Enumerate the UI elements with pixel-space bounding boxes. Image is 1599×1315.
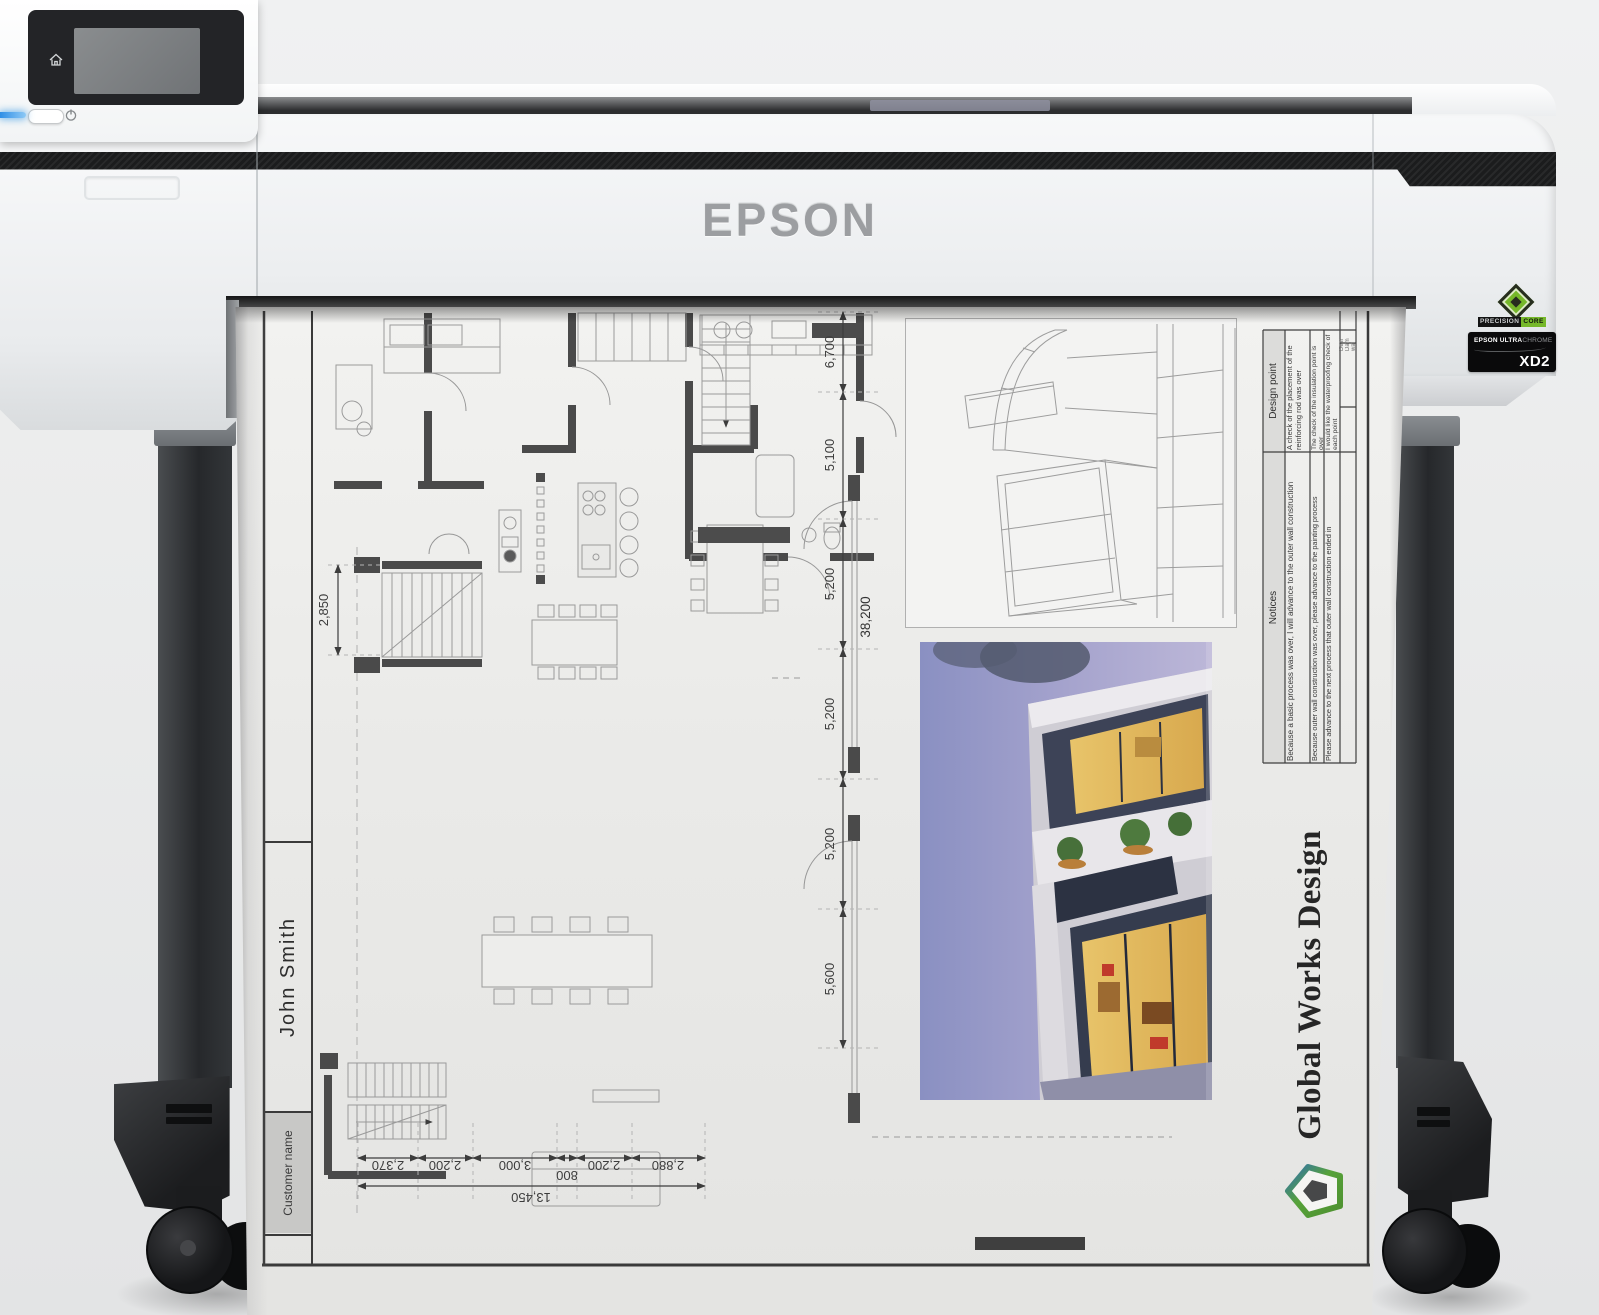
touchscreen-bezel xyxy=(28,10,244,105)
printhead-glimpse xyxy=(870,100,1050,111)
power-button xyxy=(28,109,64,124)
status-led xyxy=(0,112,26,118)
ultrachrome-suffix: CHROME xyxy=(1522,337,1552,344)
dim-total-label: 38,200 xyxy=(858,596,873,637)
ultrachrome-swoosh xyxy=(1474,344,1546,352)
customer-name-label: Customer name xyxy=(276,1113,300,1233)
epson-logo: EPSON xyxy=(640,197,940,243)
dimension-chains: 2,370 2,200 3,000 800 2,200 2,880 13,450… xyxy=(316,312,880,1205)
precisioncore-label-2: CORE xyxy=(1521,317,1545,327)
dim-label: 5,100 xyxy=(822,439,837,472)
ultrachrome-badge: EPSON ULTRACHROME XD2 xyxy=(1468,332,1556,372)
dim-label: 2,200 xyxy=(588,1158,621,1173)
dim-label: 800 xyxy=(556,1168,578,1183)
dim-label: 5,200 xyxy=(822,568,837,601)
dim-label: 2,370 xyxy=(372,1158,405,1173)
notice-item: Because outer wall construction was over… xyxy=(1310,452,1324,763)
sheet-left-curl xyxy=(232,307,268,1315)
right-leg xyxy=(1396,416,1454,1068)
dim-total-label: 13,450 xyxy=(511,1190,551,1205)
design-point-item: The check of the insulation point is ove… xyxy=(1310,330,1324,452)
dim-label: 2,880 xyxy=(652,1158,685,1173)
right-foot xyxy=(1396,1056,1492,1206)
left-leg xyxy=(158,416,232,1088)
dim-label: 5,200 xyxy=(822,828,837,861)
precisioncore-badge: PRECISIONCORE xyxy=(1478,317,1546,327)
left-foot-vent xyxy=(166,1104,212,1113)
touchscreen xyxy=(74,28,200,94)
ink-compartment xyxy=(0,140,257,430)
company-logo-icon xyxy=(1288,1167,1340,1215)
right-caster-wheel xyxy=(1382,1208,1468,1294)
notice-item: Because a basic process was over, I will… xyxy=(1285,452,1310,763)
right-foot-vent2 xyxy=(1417,1120,1450,1127)
dim-label: 3,000 xyxy=(499,1158,532,1173)
right-leg-cap xyxy=(1394,416,1460,446)
home-icon xyxy=(48,52,64,68)
printed-sheet: 2,370 2,200 3,000 800 2,200 2,880 13,450… xyxy=(232,307,1406,1315)
roll-cover-gap xyxy=(250,97,1412,115)
customer-name-value: John Smith xyxy=(273,842,303,1112)
precisioncore-diamond-icon xyxy=(1498,284,1530,316)
photo-inset xyxy=(920,642,1212,1100)
control-panel xyxy=(0,0,258,142)
left-foot-vent2 xyxy=(166,1117,212,1124)
dim-label: 5,600 xyxy=(822,963,837,996)
ultrachrome-model: XD2 xyxy=(1474,353,1550,370)
dim-label: 5,200 xyxy=(822,698,837,731)
design-point-header: Design point xyxy=(1263,330,1285,452)
notice-item: Please advance to the next process that … xyxy=(1324,452,1340,763)
right-foot-vent xyxy=(1417,1107,1450,1116)
compartment-handle-recess xyxy=(84,176,180,200)
dim-label: 6,700 xyxy=(822,336,837,369)
sheet-top-shadow xyxy=(232,307,1406,323)
ultrachrome-brand: EPSON ULTRA xyxy=(1474,337,1522,344)
wireframe-inset xyxy=(905,318,1237,628)
precisioncore-label-1: PRECISION xyxy=(1478,317,1521,327)
company-name: Global Works Design xyxy=(1286,830,1334,1140)
product-photo: EPSON PRECISIONCORE EPSON ULTRACHROME XD… xyxy=(0,0,1599,1315)
dim-label: 2,850 xyxy=(316,594,331,627)
left-caster-hub xyxy=(180,1240,196,1256)
design-point-item: A check of the placement of the reinforc… xyxy=(1285,330,1310,452)
power-icon xyxy=(64,108,78,122)
dim-label: 2,200 xyxy=(429,1158,462,1173)
design-point-item: I would like the waterproofing check of … xyxy=(1324,330,1340,452)
notices-header: Notices xyxy=(1263,452,1285,763)
